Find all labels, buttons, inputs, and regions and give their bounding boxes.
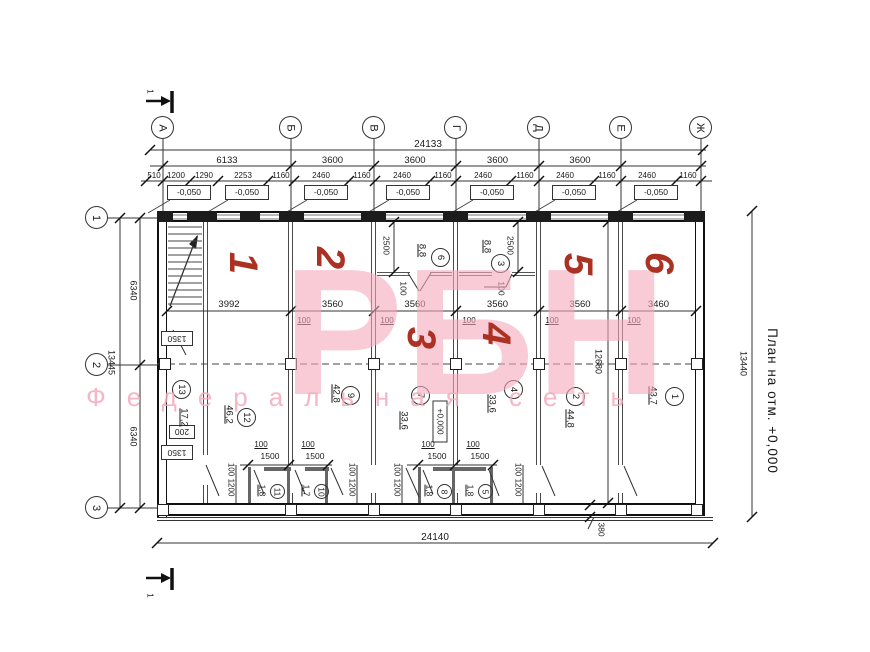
dim-left-lower: 6340: [128, 419, 139, 455]
axis-col-4: Д: [527, 116, 550, 139]
column: [450, 358, 462, 370]
wc-dim-7: 1500: [464, 451, 496, 462]
column: [285, 358, 297, 370]
pier: [240, 211, 260, 222]
zero-level-mark: +0,000: [433, 401, 448, 443]
red-mark-3: 3: [399, 316, 443, 360]
partition-room3: [459, 272, 492, 276]
dim-bay-4: 3600: [539, 155, 621, 166]
elevation-mark-3: -0,050: [386, 185, 430, 200]
wc-dim-5: 1500: [421, 451, 453, 462]
wall-stub: [371, 493, 376, 503]
dim-upperwall-1: 100: [496, 278, 507, 300]
column: [368, 504, 380, 516]
dim-bay-2: 3600: [374, 155, 456, 166]
column: [533, 358, 545, 370]
room-circle-12: 12: [237, 408, 256, 427]
room-area-8: 1,8: [424, 479, 435, 503]
dim-wall-1: 100: [376, 315, 398, 326]
wall-stub: [618, 493, 623, 503]
red-mark-4: 4: [474, 312, 518, 356]
dim-mid-4: 3560: [539, 299, 621, 310]
axis-col-1: Б: [279, 116, 302, 139]
dim-detail-11: 2460: [550, 170, 580, 181]
dim-upperwall-0: 100: [398, 278, 409, 300]
watermark-caption: Федеральная сеть: [86, 382, 645, 413]
pier: [187, 211, 217, 222]
dim-detail-12: 1160: [592, 170, 622, 181]
dim-right-overall: 13440: [738, 344, 749, 384]
dim-bay-1: 3600: [291, 155, 374, 166]
floor-plan-sheet: А Б В Г Д Е Ж 1 2 3 24133 6133 3600 3600…: [0, 0, 870, 652]
dim-detail-3: 2253: [228, 170, 258, 181]
dim-bay-3: 3600: [456, 155, 539, 166]
dim-detail-1: 1200: [161, 170, 191, 181]
wc-dim-3: 1500: [299, 451, 331, 462]
room-area-9: 42,8: [331, 378, 342, 410]
dim-detail-5: 2460: [306, 170, 336, 181]
room-circle-10: 10: [314, 484, 329, 499]
pier: [684, 211, 705, 222]
wall-axis-v: [371, 222, 376, 465]
column: [615, 504, 627, 516]
column: [691, 504, 703, 516]
dim-mid-5: 3460: [621, 299, 696, 310]
dim-left-overall: 13445: [106, 341, 117, 385]
column: [615, 358, 627, 370]
room-circle-11: 11: [270, 484, 285, 499]
jamb-dim-3: 1200: [347, 475, 358, 501]
room-circle-3: 3: [491, 254, 510, 273]
axis-col-2: В: [362, 116, 385, 139]
axis-col-6: Ж: [689, 116, 712, 139]
dim-detail-2: 1290: [189, 170, 219, 181]
room-area-1: 43,7: [648, 380, 659, 412]
room-area-12: 46,2: [224, 399, 235, 431]
column: [450, 504, 462, 516]
dim-mid-3: 3560: [456, 299, 539, 310]
jamb-dim-1: 1200: [226, 475, 237, 501]
wall-axis-g: [453, 222, 458, 465]
partition-room6: [377, 272, 410, 276]
pier: [608, 211, 633, 222]
jamb-dim-7: 1200: [513, 475, 524, 501]
wc-dim-2: 100: [297, 439, 319, 450]
red-mark-1: 1: [221, 241, 265, 285]
jamb-dim-5: 1200: [392, 475, 403, 501]
plinth-line: [157, 517, 713, 521]
dim-wall-0: 100: [293, 315, 315, 326]
axis-row-2: 3: [85, 496, 108, 519]
room-circle-5: 5: [478, 484, 493, 499]
wc-dim-0: 100: [250, 439, 272, 450]
wall-axis-e: [618, 222, 623, 465]
dim-detail-4: 1160: [266, 170, 296, 181]
wc-partition: [433, 467, 486, 471]
elevation-mark-5: -0,050: [552, 185, 596, 200]
dim-detail-9: 2460: [468, 170, 498, 181]
pier: [526, 211, 551, 222]
room-area-11: 1,8: [257, 479, 268, 503]
pier: [443, 211, 468, 222]
room-area-5: 1,8: [465, 479, 476, 503]
wall-stub: [536, 493, 541, 503]
wc-partition: [418, 467, 421, 503]
dim-detail-13: 2460: [632, 170, 662, 181]
red-mark-2: 2: [308, 236, 352, 280]
dim-mid-1: 3560: [291, 299, 374, 310]
wc-dim-4: 100: [417, 439, 439, 450]
elevation-mark-4: -0,050: [470, 185, 514, 200]
column: [368, 358, 380, 370]
partition-room6: [430, 272, 452, 276]
section-label-bottom: 1: [145, 591, 156, 601]
axis-col-3: Г: [444, 116, 467, 139]
room-area-7: 33,6: [399, 405, 410, 437]
room-circle-4: 4: [504, 380, 523, 399]
wc-dim-6: 100: [462, 439, 484, 450]
dim-detail-14: 1160: [673, 170, 703, 181]
dim-detail-10: 1160: [510, 170, 540, 181]
pier: [361, 211, 386, 222]
room-circle-13: 13: [172, 380, 191, 399]
room-area-13: 17,2: [179, 402, 190, 434]
room-area-2: 44,8: [565, 403, 576, 435]
plan-title: План на отм. +0,000: [764, 326, 780, 476]
dim-wall-4: 100: [623, 315, 645, 326]
column: [533, 504, 545, 516]
room-circle-7: 7: [411, 386, 430, 405]
room-area-6: 8,8: [417, 238, 428, 264]
room-circle-9: 9: [341, 386, 360, 405]
dim-bottom-overall: 24140: [157, 532, 713, 543]
red-mark-6: 6: [637, 241, 681, 285]
room-circle-6: 6: [431, 248, 450, 267]
room-circle-1: 1: [665, 387, 684, 406]
wc-dim-1: 1500: [254, 451, 286, 462]
dim-overall-top: 24133: [150, 139, 706, 150]
pier: [279, 211, 304, 222]
stair-wall: [203, 222, 208, 455]
red-mark-5: 5: [556, 242, 600, 286]
elevation-mark-6: -0,050: [634, 185, 678, 200]
dim-detail-7: 2460: [387, 170, 417, 181]
wc-partition: [287, 467, 290, 503]
dim-depth-0: 2500: [381, 228, 392, 264]
dim-right-inner: 12680: [593, 342, 604, 382]
elevation-mark-1: -0,050: [225, 185, 269, 200]
dim-left-upper: 6340: [128, 273, 139, 309]
column: [159, 358, 171, 370]
column: [691, 358, 703, 370]
column: [285, 504, 297, 516]
section-label-top: 1: [145, 87, 156, 97]
room-circle-8: 8: [437, 484, 452, 499]
dim-detail-8: 1160: [428, 170, 458, 181]
axis-row-0: 1: [85, 206, 108, 229]
room-area-10: 1,7: [301, 479, 312, 503]
wc-partition: [248, 467, 251, 503]
elevation-mark-2: -0,050: [304, 185, 348, 200]
dim-mid-0: 3992: [167, 299, 291, 310]
dim-mid-2: 3560: [374, 299, 456, 310]
wall-axis-d: [536, 222, 541, 465]
column: [157, 504, 169, 516]
wc-partition: [452, 467, 455, 503]
dim-wall-3: 100: [541, 315, 563, 326]
axis-col-0: А: [151, 116, 174, 139]
pier: [157, 211, 173, 222]
room-area-4: 33,6: [487, 388, 498, 420]
wall-axis-b: [288, 222, 293, 465]
dim-bay-0: 6133: [163, 155, 291, 166]
stair-wall-stub: [203, 485, 208, 503]
stair-dim-2: 1350: [161, 445, 193, 460]
stair-dim-0: 1350: [161, 331, 193, 346]
axis-col-5: Е: [609, 116, 632, 139]
elevation-mark-0: -0,050: [167, 185, 211, 200]
partition-room3: [512, 272, 535, 276]
dim-detail-6: 1160: [347, 170, 377, 181]
room-area-3: 8,8: [482, 234, 493, 260]
